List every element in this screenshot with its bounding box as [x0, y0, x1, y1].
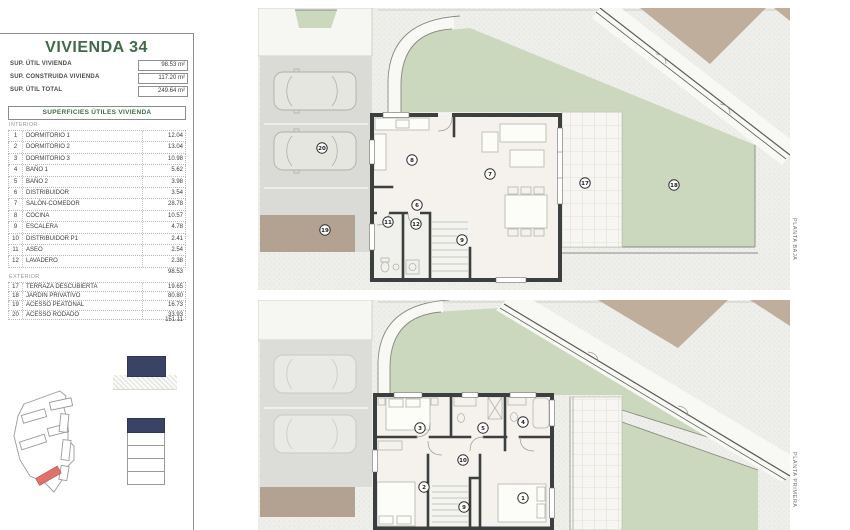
areas-table-header: SUPERFICIES ÚTILES VIVIENDA [8, 106, 186, 120]
room-marker-number: 12 [412, 222, 420, 228]
room-area: 4.78 [143, 222, 185, 232]
balcony [570, 397, 622, 530]
summary-value: 249.64 m² [138, 86, 188, 97]
row-number: 8 [9, 211, 23, 221]
page-title: VIVIENDA 34 [0, 39, 193, 57]
car-top-view [274, 129, 356, 173]
room-name: DORMITORIO 1 [23, 131, 143, 141]
room-marker-number: 9 [462, 505, 466, 511]
row-number: 9 [9, 222, 23, 232]
table-row: 6 DISTRIBUIDOR 3.54 [8, 188, 186, 199]
room-name: BAÑO 1 [23, 165, 143, 175]
room-marker-number: 1 [521, 496, 525, 502]
interior-section-label: INTERIOR [9, 122, 38, 128]
stack-cell [127, 433, 165, 446]
front-plot [258, 300, 372, 340]
stack-cell [127, 459, 165, 472]
table-row: 8 COCINA 10.57 [8, 211, 186, 222]
exterior-areas-table: 17 TERRAZA DESCUBIERTA 19.65 18 JARDÍN P… [8, 282, 186, 320]
table-row: 12 LAVADERO 2.38 [8, 256, 186, 267]
room-area: 12.04 [143, 131, 185, 141]
room-name: DISTRIBUIDOR [23, 188, 143, 198]
summary-value: 117.20 m² [138, 73, 188, 84]
room-name: DORMITORIO 3 [23, 154, 143, 164]
stack-cell [127, 446, 165, 459]
table-row: 2 DORMITORIO 2 13.04 [8, 142, 186, 153]
room-area: 2.54 [143, 245, 185, 255]
table-row: 17 TERRAZA DESCUBIERTA 19.65 [8, 283, 186, 292]
panel-top-rule [0, 33, 193, 34]
bedroom3-furniture [378, 398, 438, 430]
exterior-total: 151.11 [8, 317, 186, 323]
room-name: ASEO [23, 245, 143, 255]
room-marker-number: 11 [384, 220, 392, 226]
summary-value: 98.53 m² [138, 60, 188, 71]
summary-row: SUP. ÚTIL VIVIENDA 98.53 m² [10, 61, 188, 72]
room-marker-number: 19 [321, 228, 329, 234]
table-row: 3 DORMITORIO 3 10.98 [8, 154, 186, 165]
table-row: 5 BAÑO 2 3.98 [8, 177, 186, 188]
ground-floor-indicator [127, 356, 166, 377]
table-row: 11 ASEO 2.54 [8, 245, 186, 256]
summary-label: SUP. CONSTRUIDA VIVIENDA [10, 74, 99, 80]
room-area: 2.41 [143, 234, 185, 244]
room-area: 10.57 [143, 211, 185, 221]
dining-set [505, 187, 547, 236]
summary-label: SUP. ÚTIL VIVIENDA [10, 61, 72, 67]
floorplan-planta-baja: 8769111217181920 [258, 8, 790, 290]
room-marker-number: 20 [318, 146, 326, 152]
staircase [430, 215, 470, 280]
room-marker-number: 5 [481, 426, 485, 432]
row-number: 7 [9, 199, 23, 209]
room-name: DORMITORIO 2 [23, 142, 143, 152]
first-floor-indicator [127, 418, 165, 485]
room-marker-number: 10 [459, 458, 467, 464]
room-marker-number: 9 [460, 238, 464, 244]
row-number: 10 [9, 234, 23, 244]
row-number: 12 [9, 256, 23, 266]
room-area: 13.04 [143, 142, 185, 152]
table-row: 9 ESCALERA 4.78 [8, 222, 186, 233]
panel-divider-rule [193, 33, 194, 530]
table-row: 19 ACESSO PEATONAL 16.73 [8, 301, 186, 310]
row-number: 3 [9, 154, 23, 164]
plan-sheet: VIVIENDA 34 SUP. ÚTIL VIVIENDA 98.53 m² … [0, 0, 850, 530]
room-area: 2.38 [143, 256, 185, 266]
room-area: 3.98 [143, 177, 185, 187]
room-marker-number: 7 [488, 172, 492, 178]
ground-hatch-symbol [113, 375, 177, 390]
row-number: 18 [9, 292, 23, 300]
table-row: 10 DISTRIBUIDOR P1 2.41 [8, 234, 186, 245]
plan-label-planta-baja: PLANTA BAJA [791, 218, 797, 261]
room-name: JARDÍN PRIVATIVO [23, 292, 143, 300]
summary-row: SUP. ÚTIL TOTAL 249.64 m² [10, 87, 188, 98]
pedestrian-access [260, 215, 355, 252]
room-name: LAVADERO [23, 256, 143, 266]
room-name: SALÓN-COMEDOR [23, 199, 143, 209]
row-number: 5 [9, 177, 23, 187]
car-top-view [274, 355, 356, 393]
car-top-view [274, 69, 356, 113]
room-area: 5.62 [143, 165, 185, 175]
terrace [562, 112, 622, 247]
stack-cell [127, 472, 165, 485]
room-marker-number: 4 [521, 420, 525, 426]
room-area: 28.78 [143, 199, 185, 209]
row-number: 19 [9, 301, 23, 309]
room-area: 3.54 [143, 188, 185, 198]
table-row: 7 SALÓN-COMEDOR 28.78 [8, 199, 186, 210]
pedestrian-access [260, 487, 355, 517]
plan-label-planta-primera: PLANTA PRIMERA [791, 452, 797, 508]
table-row: 4 BAÑO 1 5.62 [8, 165, 186, 176]
room-marker-number: 17 [581, 181, 589, 187]
room-name: BAÑO 2 [23, 177, 143, 187]
room-marker-number: 8 [410, 158, 414, 164]
summary-label: SUP. ÚTIL TOTAL [10, 87, 62, 93]
interior-areas-table: 1 DORMITORIO 1 12.04 2 DORMITORIO 2 13.0… [8, 130, 186, 268]
row-number: 11 [9, 245, 23, 255]
room-name: ACESSO PEATONAL [23, 301, 143, 309]
room-name: ESCALERA [23, 222, 143, 232]
row-number: 2 [9, 142, 23, 152]
room-marker-number: 6 [415, 203, 419, 209]
room-area: 10.98 [143, 154, 185, 164]
row-number: 6 [9, 188, 23, 198]
room-area: 80.80 [143, 292, 185, 300]
room-marker-number: 18 [670, 183, 678, 189]
car-top-view [274, 415, 356, 453]
room-marker-number: 2 [422, 485, 426, 491]
exterior-section-label: EXTERIOR [9, 274, 40, 280]
table-row: 1 DORMITORIO 1 12.04 [8, 131, 186, 142]
site-key-map [10, 388, 105, 503]
room-name: COCINA [23, 211, 143, 221]
floorplan-planta-primera: 35410219 [258, 300, 790, 530]
table-row: 18 JARDÍN PRIVATIVO 80.80 [8, 292, 186, 301]
stack-cell-filled [127, 418, 165, 433]
row-number: 1 [9, 131, 23, 141]
summary-row: SUP. CONSTRUIDA VIVIENDA 117.20 m² [10, 74, 188, 85]
room-marker-number: 3 [418, 426, 422, 432]
front-green [295, 10, 337, 28]
row-number: 17 [9, 283, 23, 291]
room-area: 16.73 [143, 301, 185, 309]
row-number: 4 [9, 165, 23, 175]
room-name: DISTRIBUIDOR P1 [23, 234, 143, 244]
room-area: 19.65 [143, 283, 185, 291]
room-name: TERRAZA DESCUBIERTA [23, 283, 143, 291]
